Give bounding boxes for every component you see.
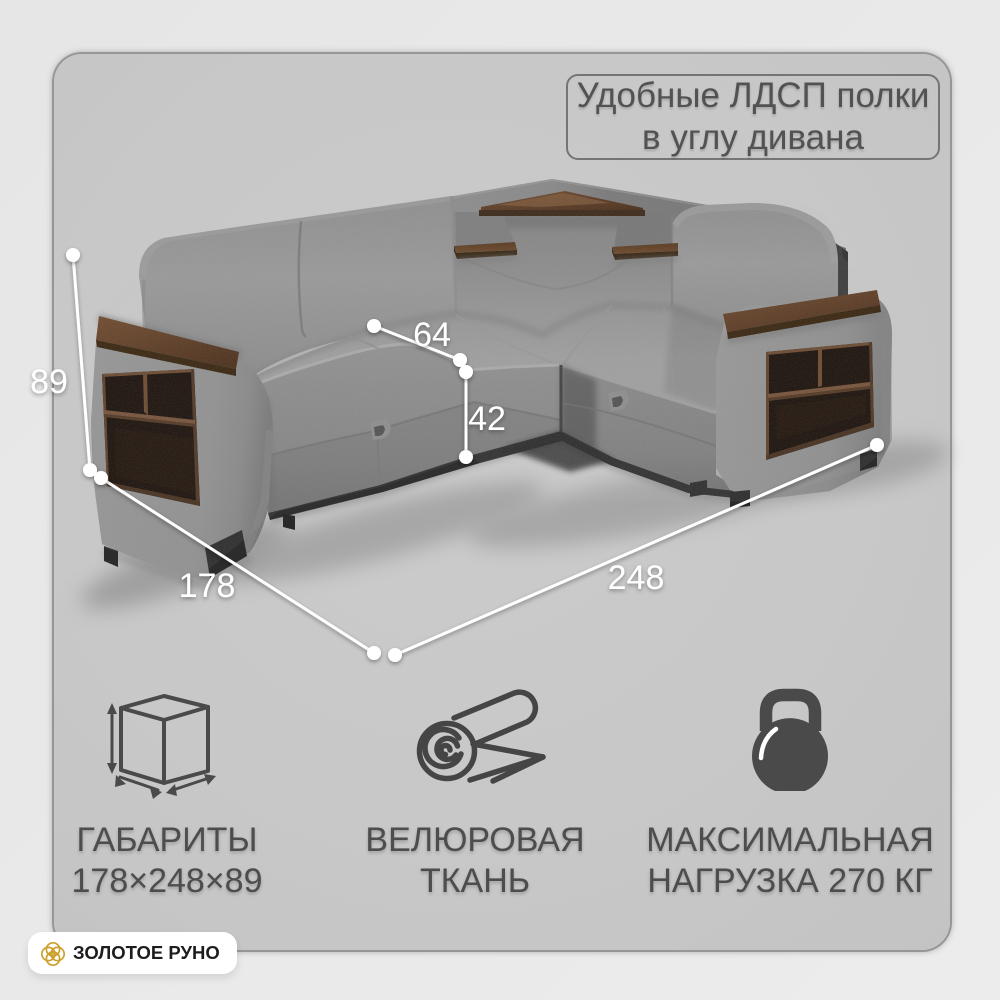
svg-text:178: 178: [179, 567, 236, 605]
svg-text:42: 42: [468, 400, 506, 438]
svg-text:89: 89: [30, 363, 68, 401]
svg-text:248: 248: [608, 559, 665, 597]
svg-text:64: 64: [413, 316, 451, 354]
